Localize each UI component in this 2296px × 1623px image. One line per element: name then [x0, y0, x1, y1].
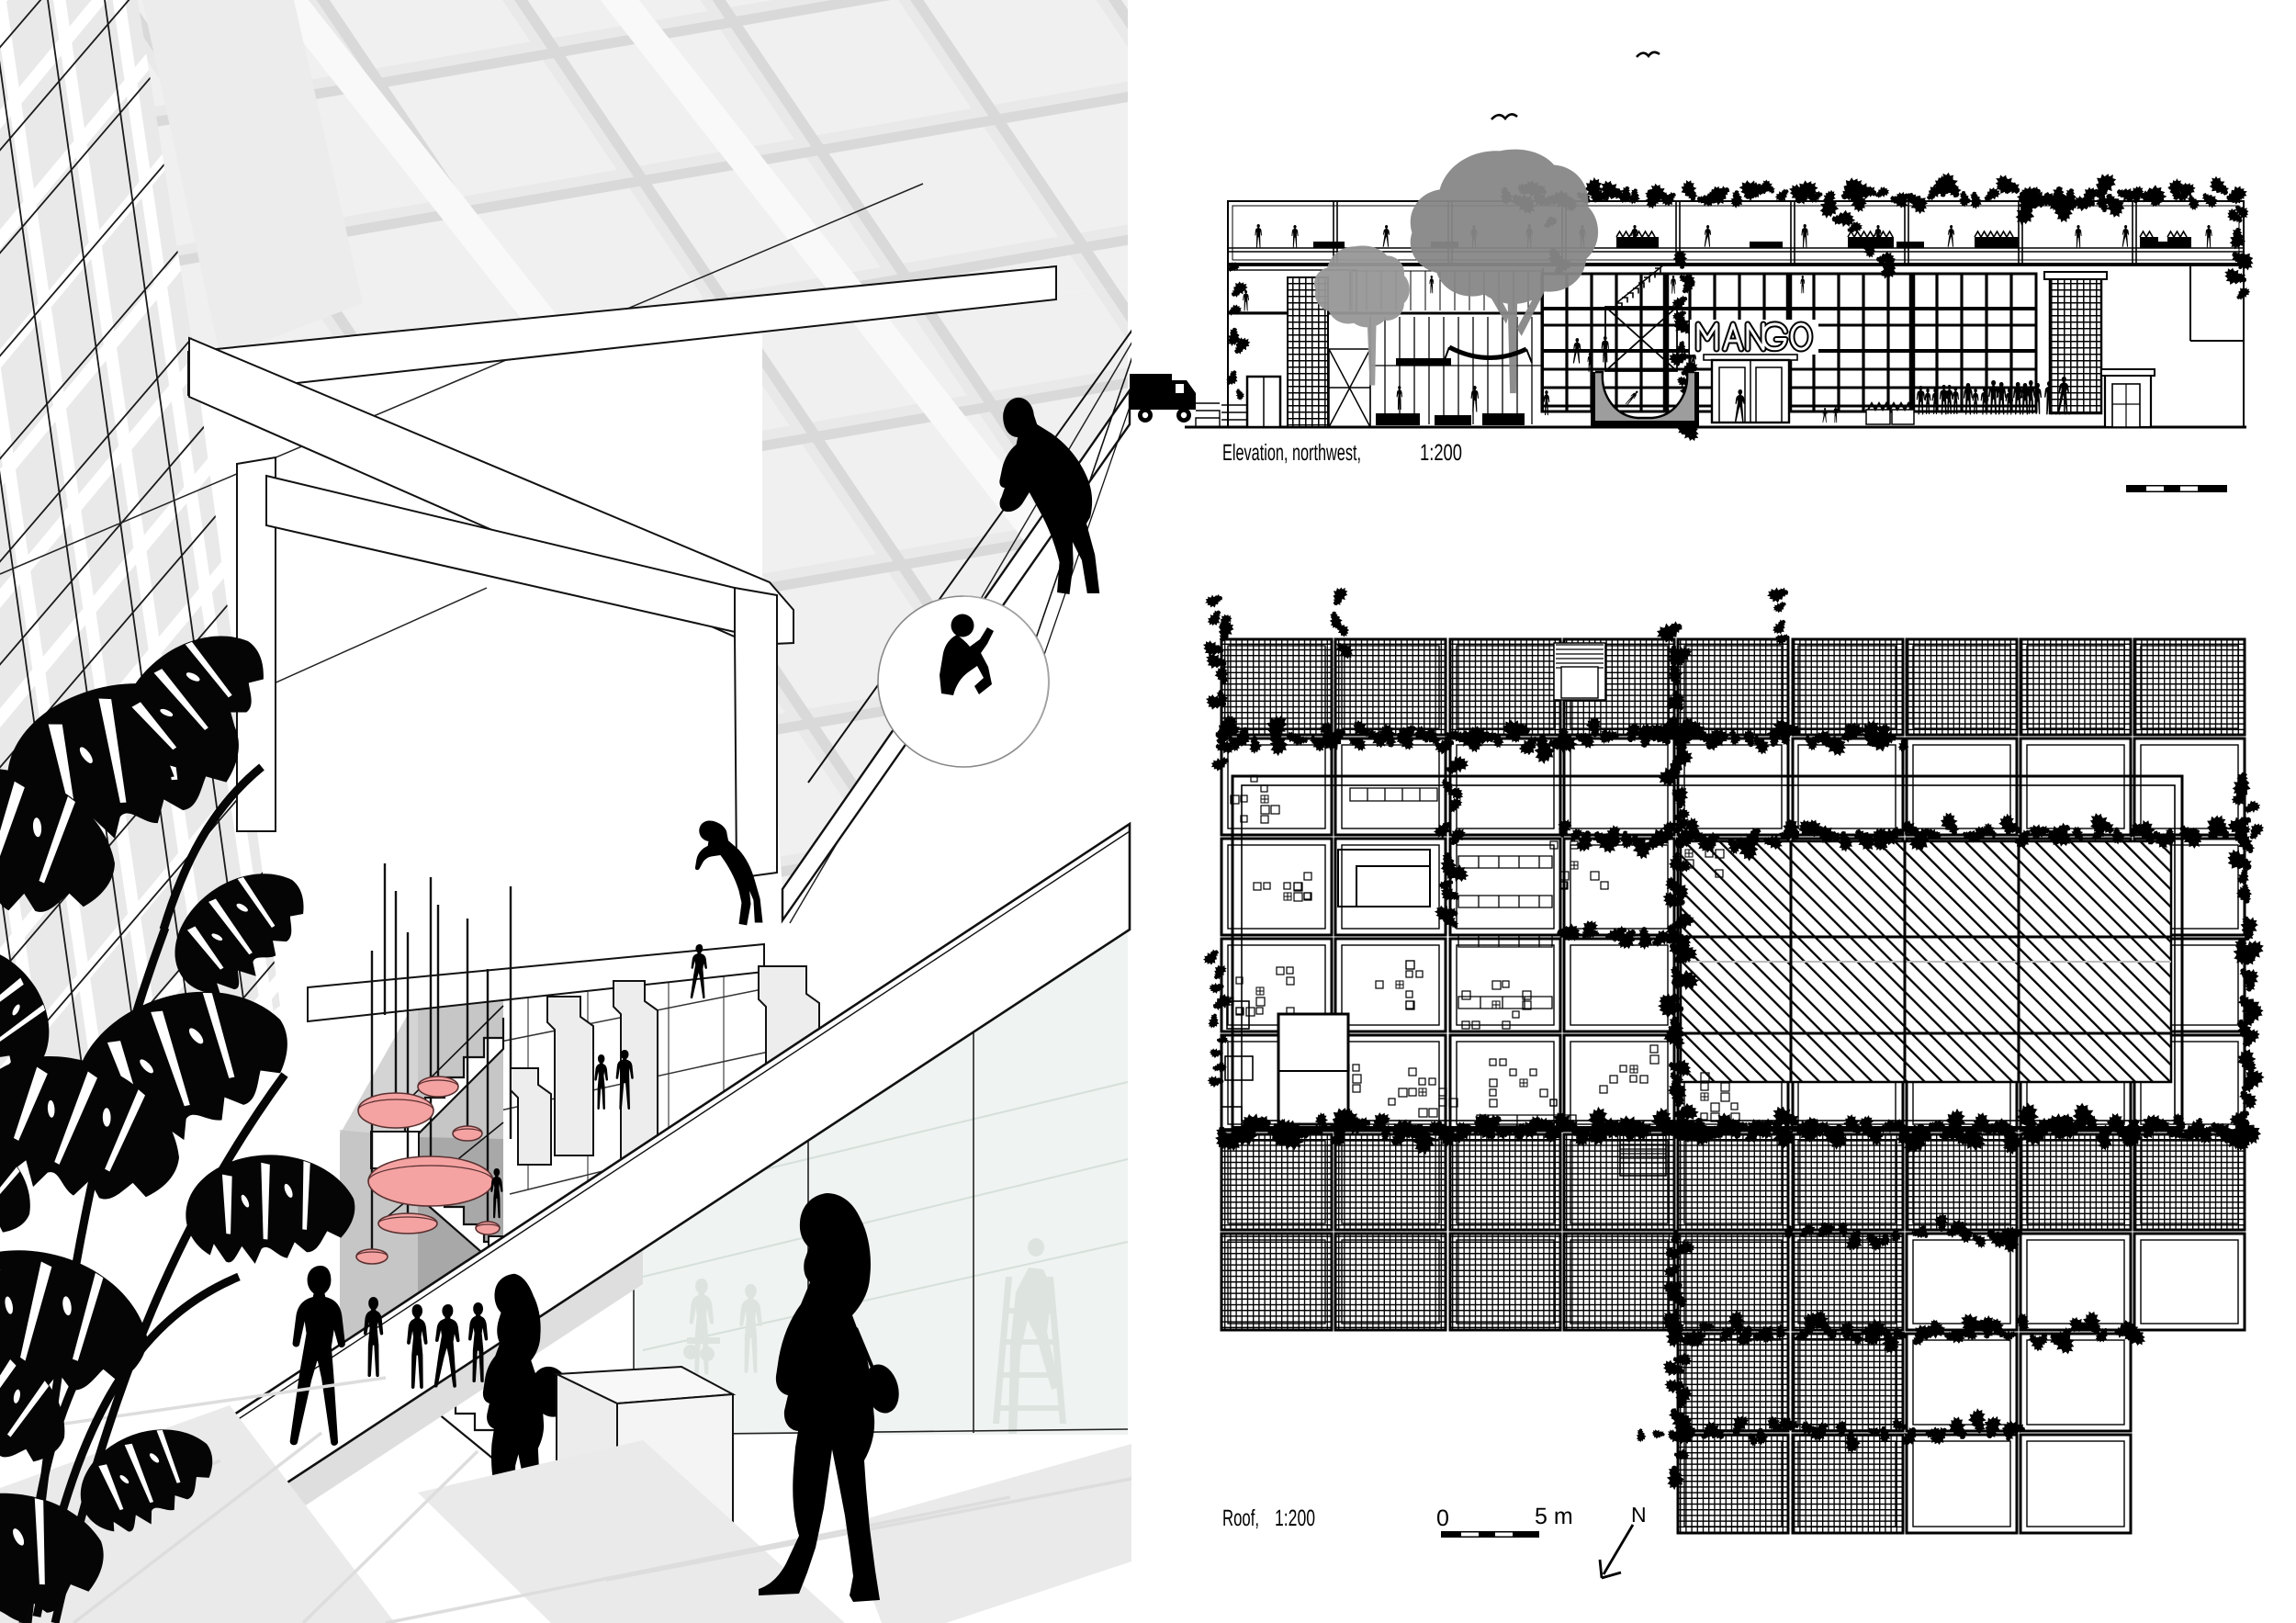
svg-text:Roof,: Roof, — [1222, 1505, 1259, 1531]
svg-text:5 m: 5 m — [1535, 1504, 1573, 1529]
svg-text:N: N — [1631, 1503, 1647, 1527]
svg-text:Elevation, northwest,: Elevation, northwest, — [1222, 440, 1361, 466]
svg-text:1:200: 1:200 — [1420, 440, 1462, 466]
svg-text:1:200: 1:200 — [1275, 1505, 1315, 1531]
svg-text:0: 0 — [1436, 1505, 1449, 1531]
